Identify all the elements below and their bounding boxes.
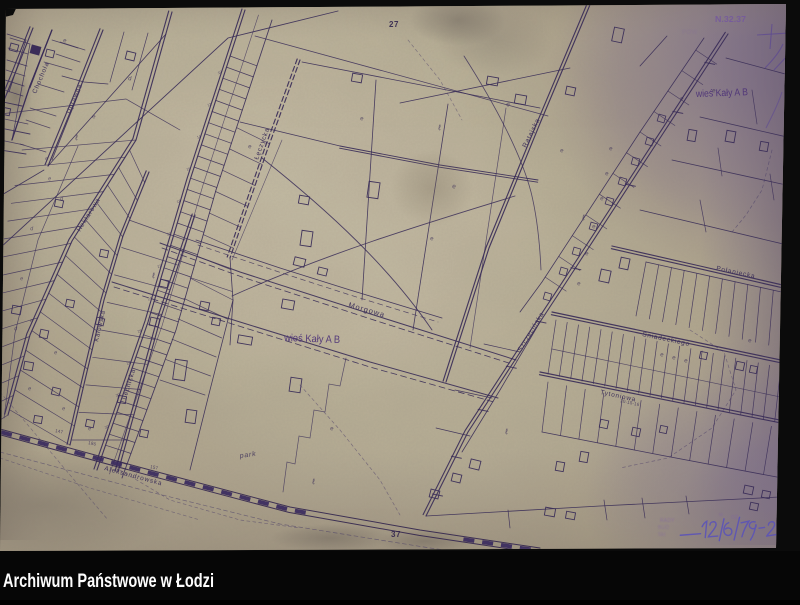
svg-text:Skł: Skł	[658, 532, 666, 538]
svg-text:27: 27	[389, 20, 399, 29]
svg-text:wieś Kały A B: wieś Kały A B	[695, 87, 749, 100]
svg-text:BUD: BUD	[658, 525, 669, 531]
svg-text:wieś Kały A B: wieś Kały A B	[283, 332, 340, 346]
svg-text:N.32.37: N.32.37	[715, 15, 747, 24]
svg-text:37: 37	[391, 530, 401, 539]
svg-text:Archiwum Państwowe w Łodzi: Archiwum Państwowe w Łodzi	[3, 571, 214, 592]
svg-text:OZ: OZ	[731, 515, 738, 521]
svg-text:M: M	[719, 512, 723, 517]
svg-text:POW·: POW·	[682, 30, 700, 36]
svg-text:RADY: RADY	[660, 518, 675, 524]
